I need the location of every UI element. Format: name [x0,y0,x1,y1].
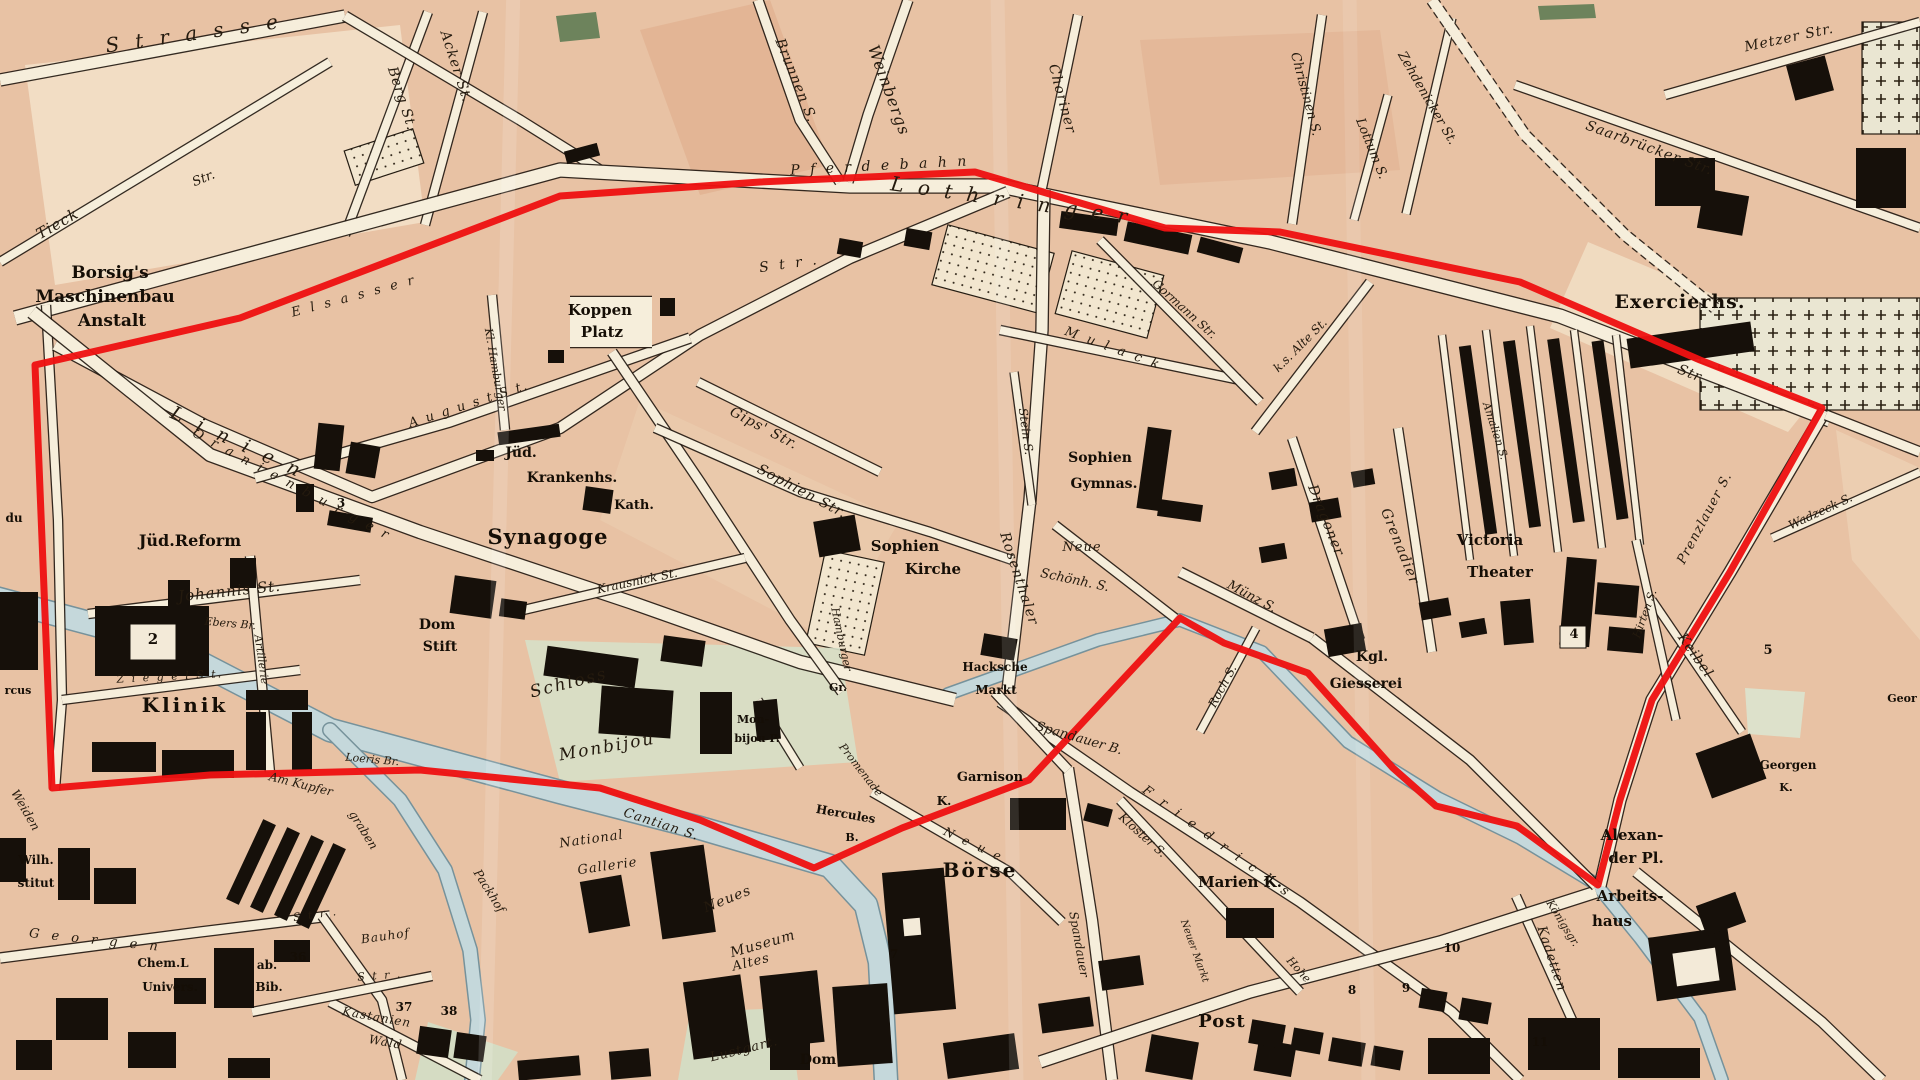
label-weiden: Weiden [8,787,43,833]
label-national: National [557,828,624,852]
building [1500,599,1534,645]
label-platz: Platz [581,323,624,341]
label-stift: Stift [423,639,458,655]
label-schönh-s: Schönh. S. [1039,566,1111,595]
label-sophien: Sophien [1068,450,1132,466]
label-kgl: Kgl. [1356,649,1388,665]
building [1248,1019,1286,1049]
label-dom: Dom [800,1052,836,1068]
building [58,848,90,900]
label-borsig-s: Borsig's [71,263,148,283]
building [92,742,156,772]
label-mon: Mon- [737,713,769,726]
building [1459,618,1487,638]
building [450,575,497,618]
building [517,1055,581,1080]
building [598,686,673,739]
park-area [1538,4,1596,20]
label-promenade: Promenade [835,740,885,799]
label-krausnick-st: Krausnick St. [595,566,679,597]
building [1328,1037,1366,1067]
building-courtyard [902,917,922,937]
label-8: 8 [1348,983,1356,997]
label-gallerie: Gallerie [577,855,639,878]
map-canvas: S t r a s s eTieckStr.Borsig'sMaschinenb… [0,0,1920,1080]
label-roch-s: Roch S. [1205,662,1239,710]
label-e-l-s-a-s-s-e-r: E l s a s s e r [289,273,419,321]
label-post: Post [1198,1011,1246,1032]
label-synagoge: Synagoge [488,524,609,549]
label-jüd-reform: Jüd.Reform [137,531,241,550]
building [882,868,956,1015]
label-giesserei: Giesserei [1330,676,1402,692]
label-10: 10 [1444,941,1461,955]
building [246,712,266,770]
label-neue: Neue [1061,540,1101,555]
label-bib: Bib. [255,980,282,994]
label-anstalt: Anstalt [77,311,146,331]
building [609,1048,651,1079]
building [700,692,732,754]
label-garnison: Garnison [957,770,1024,785]
building [943,1033,1019,1079]
street [1055,525,1175,618]
label-geor: Geor [1887,692,1917,705]
label-3: 3 [337,496,345,510]
building [16,1040,52,1070]
building [94,868,136,904]
label-k: K. [937,794,952,808]
label-b: B. [845,831,858,844]
label-ab: ab. [257,958,277,972]
label-bijou-p: bijou P. [734,732,779,745]
building [1269,468,1298,490]
label-exercierhs: Exercierhs. [1615,291,1746,313]
label-rcus: rcus [5,684,32,697]
building [582,486,613,514]
building [1696,734,1767,799]
label-chem-l: Chem.L [137,956,189,970]
label-bauhof: Bauhof [359,925,412,946]
label-dom: Dom [419,617,455,633]
building [1157,499,1203,522]
label-victoria: Victoria [1456,531,1524,549]
building [345,442,380,479]
label-markt: Markt [975,683,1017,697]
building [813,515,861,558]
label-kirche: Kirche [905,560,961,578]
label-haus: haus [1592,912,1632,930]
label-k: K. [1779,781,1792,794]
label-univers: Univers. [142,980,198,994]
label-4: 4 [1569,627,1578,642]
building [228,1058,270,1078]
label-36: 36 [290,950,307,964]
park-area [556,12,600,42]
label-maschinenbau: Maschinenbau [35,287,174,307]
label-kath: Kath. [614,498,654,513]
building [314,423,345,471]
label-7: 7 [890,947,898,961]
building [1038,997,1094,1034]
label-38: 38 [441,1004,458,1018]
building [1697,188,1749,235]
label-koppen: Koppen [568,301,632,319]
label-wadzeck-s: Wadzeck S. [1786,490,1854,532]
label-der-pl: der Pl. [1608,849,1663,867]
building [214,948,254,1008]
building [548,350,564,363]
label-arbeits: Arbeits- [1596,887,1664,905]
label-37: 37 [396,1000,413,1014]
building [580,875,630,934]
building [1226,908,1274,938]
label-gymnas: Gymnas. [1071,476,1138,492]
building [1136,427,1171,512]
label-hacksche: Hacksche [962,660,1028,674]
building [56,998,108,1040]
building [1145,1034,1199,1080]
label-gr: Gr. [829,681,847,694]
building [246,690,308,710]
label-graben: graben [346,808,381,852]
label-stitut: stitut [18,876,55,890]
building [1098,955,1144,991]
label-2: 2 [148,630,158,648]
label-neuer-markt: Neuer Markt [1178,917,1212,985]
building [1618,1048,1700,1078]
label-marien-k: Marien K. [1198,873,1282,891]
building [476,450,494,461]
building [416,1026,452,1058]
building [1418,988,1447,1012]
building [660,298,675,316]
label-georgen: Georgen [1760,758,1817,772]
label-9: 9 [1402,981,1410,995]
building [292,712,312,770]
building [1595,582,1640,618]
building [1259,543,1287,563]
block-tint [1836,430,1920,640]
label-prenzlauer-s: Prenzlauer S. [1674,470,1735,568]
building [837,238,863,258]
label-theater: Theater [1467,563,1534,581]
building [1428,1038,1490,1074]
label-börse: Börse [943,858,1018,882]
building [832,983,892,1067]
building [650,845,716,940]
label-wilh: Wilh. [17,853,53,867]
building [0,592,38,670]
label-ebers-br: Ebers Br. [203,615,257,633]
block-tint [1140,30,1400,185]
label-krankenhs: Krankenhs. [527,470,618,486]
label-5: 5 [1763,643,1772,658]
historical-city-map: S t r a s s eTieckStr.Borsig'sMaschinenb… [0,0,1920,1080]
label-alexan: Alexan- [1600,826,1664,844]
label-11: 11 [1532,1035,1549,1049]
building [1083,803,1113,827]
park-area [1745,688,1805,738]
label-klinik: Klinik [142,693,229,717]
building [1370,1046,1403,1071]
building-courtyard [1672,947,1720,987]
label-du: du [5,511,22,525]
building [1856,148,1906,208]
label-jüd: Jüd. [503,445,536,461]
building [128,1032,176,1068]
label-sophien: Sophien [871,537,939,555]
label-hercules: Hercules [815,802,877,826]
